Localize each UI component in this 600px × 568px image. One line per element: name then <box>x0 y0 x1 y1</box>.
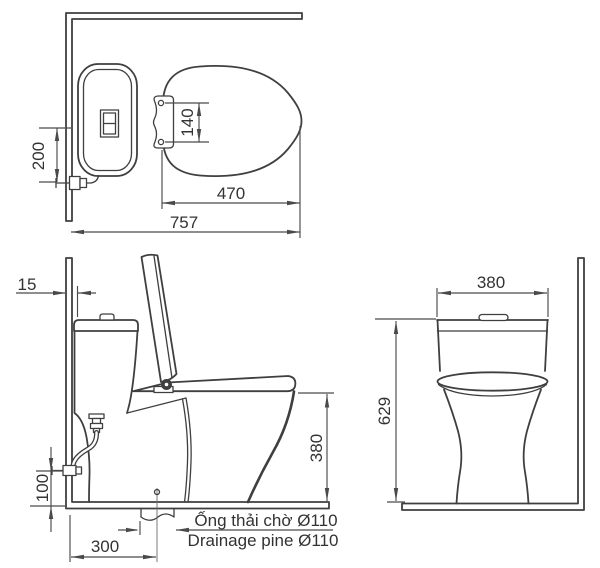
dim-label-300: 300 <box>91 537 119 556</box>
bowl-skirt-line <box>127 398 186 413</box>
dim-label-140: 140 <box>178 108 197 136</box>
dim-380-side: 380 <box>298 393 334 501</box>
water-inlet-plan <box>56 176 99 190</box>
supply-nut <box>91 424 103 429</box>
dim-label-380-side: 380 <box>307 434 326 462</box>
tank-left-edge <box>438 320 441 371</box>
dim-arrow <box>78 291 91 295</box>
drain-note-en: Drainage pine Ø110 <box>188 531 339 550</box>
supply-body <box>93 419 101 424</box>
dim-label-15: 15 <box>18 275 37 294</box>
pedestal-front-edge <box>248 392 294 503</box>
pipe-break-wave <box>141 514 174 520</box>
dim-arrow <box>325 488 329 501</box>
dim-arrow <box>143 555 156 559</box>
seat-front <box>438 372 548 390</box>
drain-annotation: Ống thải chờ Ø110 Drainage pine Ø110 <box>118 510 338 550</box>
dim-arrow <box>49 506 53 519</box>
dim-label-757: 757 <box>170 213 198 232</box>
dim-arrow <box>71 230 84 234</box>
dim-arrow <box>394 488 398 501</box>
dim-arrow <box>55 128 59 141</box>
dim-label-470: 470 <box>217 184 245 203</box>
side-view: 15 100 380 300 <box>16 255 338 562</box>
dim-arrow <box>126 528 139 532</box>
drawing-canvas: 200 140 470 757 <box>0 0 600 568</box>
lid-raised <box>142 255 177 382</box>
technical-drawing-page: 200 140 470 757 <box>0 0 600 568</box>
front-view: 380 629 <box>375 258 584 510</box>
dim-200: 200 <box>29 128 71 182</box>
dim-label-200: 200 <box>29 142 48 170</box>
tank-lid-side <box>74 320 138 331</box>
dim-arrow <box>287 201 300 205</box>
top-view: 200 140 470 757 <box>29 13 302 238</box>
dim-arrow <box>394 321 398 334</box>
dim-label-100: 100 <box>33 474 52 502</box>
hinge-pivot-center <box>165 383 169 387</box>
flush-button-side <box>100 314 114 320</box>
dim-label-380-front: 380 <box>477 273 505 292</box>
drain-note-vi: Ống thải chờ Ø110 <box>194 510 337 530</box>
dim-300: 300 <box>70 515 156 562</box>
dim-15: 15 <box>16 275 96 317</box>
flush-button-front <box>479 315 508 321</box>
inlet-nut <box>80 179 87 188</box>
tank-front-edge <box>127 331 138 413</box>
tank-right-edge <box>545 320 548 371</box>
dim-arrow <box>438 291 451 295</box>
dim-arrow <box>53 291 66 295</box>
dim-arrow <box>287 230 300 234</box>
inlet-valve <box>70 177 81 190</box>
supply-hose-inner <box>73 433 97 471</box>
bowl-curve-outer <box>186 398 191 502</box>
drain-pipe <box>140 488 174 562</box>
dim-arrow <box>325 395 329 408</box>
body-back-edge <box>75 331 90 502</box>
dim-380-front: 380 <box>437 273 548 317</box>
dim-629: 629 <box>375 319 436 502</box>
dim-arrow <box>162 201 175 205</box>
bowl-curve-inner <box>183 399 188 502</box>
dim-100: 100 <box>30 447 65 532</box>
dim-arrow <box>71 555 84 559</box>
water-supply-side <box>52 414 104 476</box>
pedestal-right-edge <box>524 390 541 504</box>
wall-valve-nut <box>76 467 82 474</box>
wall-valve <box>63 466 76 476</box>
dim-label-629: 629 <box>375 397 394 425</box>
supply-flange <box>89 414 104 419</box>
dim-arrow <box>534 291 547 295</box>
dim-757: 757 <box>71 213 300 234</box>
pedestal-left-edge <box>444 390 461 504</box>
